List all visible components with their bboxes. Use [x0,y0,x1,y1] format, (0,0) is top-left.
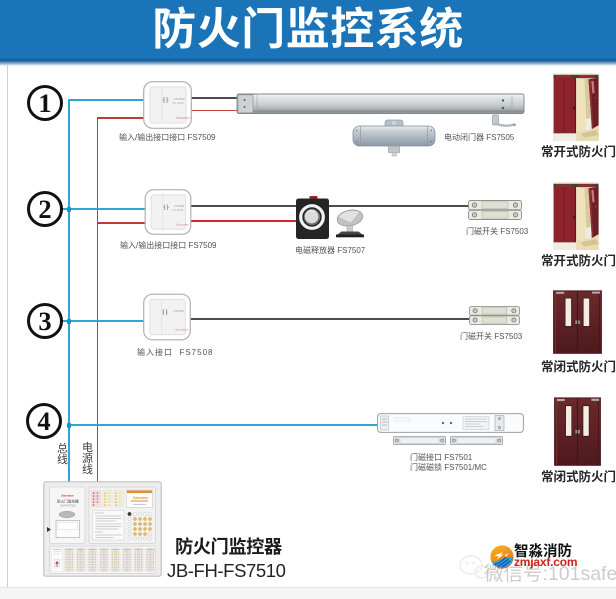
svg-text:FS7508: FS7508 [173,309,184,313]
svg-text:Saunalan: Saunalan [176,222,189,226]
svg-text:JB-FH-FS7510: JB-FH-FS7510 [60,505,77,508]
svg-text:Saunalan: Saunalan [61,494,74,498]
svg-text:I/O MOD: I/O MOD [172,208,183,212]
svg-text:防火门监控器: 防火门监控器 [57,499,79,504]
svg-text:Saunalan: Saunalan [175,328,188,332]
svg-text:I/O MOD: I/O MOD [172,101,185,105]
svg-text:Saunalan: Saunalan [133,496,148,500]
svg-text:Saunalan: Saunalan [176,116,190,120]
